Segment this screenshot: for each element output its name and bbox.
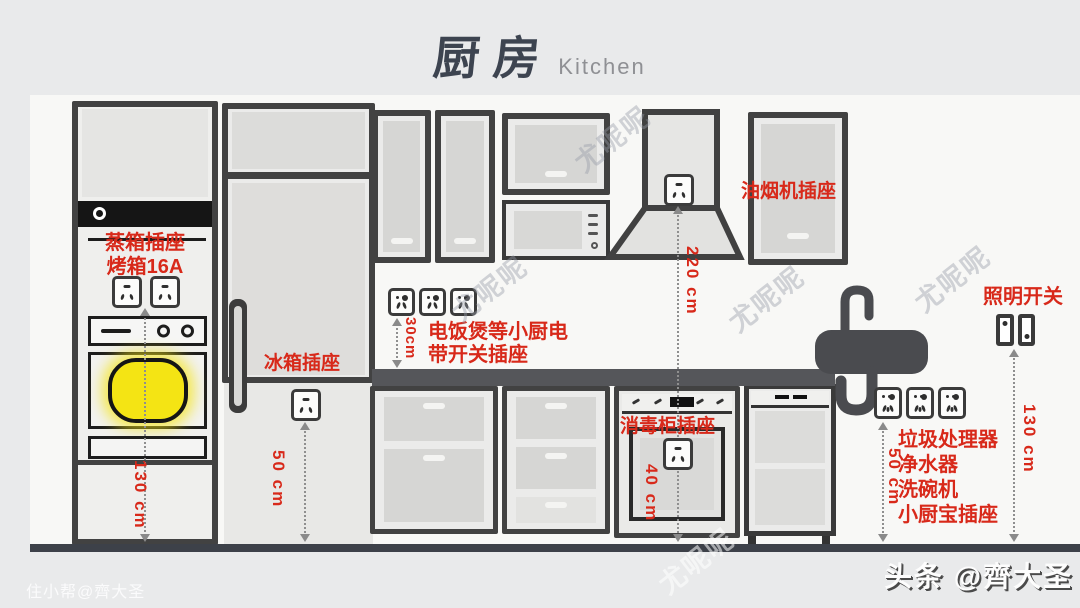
under-sink-outlet-icon — [874, 387, 902, 419]
oven-knob-icon — [157, 325, 170, 338]
small-appliances-label-2: 带开关插座 — [428, 338, 528, 367]
light-switch-icon — [996, 314, 1014, 346]
drawer-panel — [516, 447, 596, 489]
measure-line-hood — [677, 208, 679, 540]
page-title: 厨房Kitchen — [0, 22, 1080, 88]
wall-cabinet — [435, 110, 495, 263]
credit-bottom-right: 头条 @齊大圣 — [884, 555, 1073, 595]
oven-cabinet-top-panel — [82, 109, 208, 197]
measure-sterilizer: 40 cm — [641, 464, 661, 522]
kitchen-outlet-diagram: 厨房Kitchen 蒸箱插座 烤箱16A 130 cm 冰箱插座 50 cm — [0, 0, 1080, 608]
outlet-icon — [150, 276, 180, 308]
measure-line-fridge — [304, 424, 306, 540]
drawer-panel — [516, 497, 596, 523]
microwave-window — [514, 211, 582, 249]
credit-bottom-left: 住小帮@齊大圣 — [26, 578, 145, 602]
oven-window-highlight — [108, 358, 188, 423]
light-switch-label: 照明开关 — [983, 280, 1063, 309]
base-cabinet-drawers — [502, 386, 610, 534]
fridge-main-door — [232, 183, 365, 375]
measure-line-countertop — [396, 320, 398, 366]
base-cabinet-drawers — [370, 386, 498, 534]
measure-light-switch: 130 cm — [1019, 404, 1039, 474]
title-english: Kitchen — [558, 54, 645, 79]
under-sink-outlet-icon — [906, 387, 934, 419]
light-switch-icon — [1018, 314, 1035, 346]
measure-fridge: 50 cm — [268, 450, 288, 508]
fridge-outlet-label: 冰箱插座 — [264, 348, 340, 375]
cabinet-door-panel — [383, 121, 420, 252]
measure-oven-column: 130 cm — [130, 460, 150, 530]
outlet-icon — [112, 276, 142, 308]
sterilizer-outlet-label: 消毒柜插座 — [620, 411, 715, 438]
measure-hood: 220 cm — [682, 246, 702, 316]
drawer-panel — [384, 397, 484, 441]
microwave-button-icon — [588, 223, 598, 226]
microwave-button-icon — [588, 232, 598, 235]
under-sink-label-2: 净水器 — [898, 453, 998, 478]
measure-countertop: 30cm — [402, 317, 419, 359]
title-chinese: 厨房 — [431, 22, 558, 88]
measure-line-light-switch — [1013, 351, 1015, 540]
fridge-handle-inner — [234, 306, 242, 406]
fridge-divider — [228, 172, 369, 179]
switched-outlet-icon — [388, 288, 415, 316]
microwave-knob-icon — [591, 242, 598, 249]
drawer-panel — [384, 449, 484, 522]
cabinet-door-panel — [446, 121, 484, 252]
oven-knob-icon — [181, 325, 194, 338]
fridge-freezer-door — [232, 112, 365, 169]
countertop — [372, 369, 835, 386]
sterilizer-outlet-icon — [663, 438, 693, 470]
steam-oven-knob-icon — [93, 207, 106, 220]
under-sink-label-1: 垃圾处理器 — [898, 428, 998, 453]
under-sink-labels: 垃圾处理器 净水器 洗碗机 小厨宝插座 — [898, 428, 998, 528]
oven-handle-icon — [101, 329, 131, 333]
oven-16a-label: 烤箱16A — [78, 250, 212, 279]
under-sink-label-4: 小厨宝插座 — [898, 503, 998, 528]
wall-cabinet — [372, 110, 431, 263]
drawer-panel — [516, 397, 596, 439]
dishwasher-panel — [755, 469, 825, 525]
oven-control-panel — [88, 316, 207, 346]
fridge-outlet-icon — [291, 389, 321, 421]
switched-outlet-icon — [419, 288, 446, 316]
floor-line — [30, 544, 1080, 552]
hood-outlet-label: 油烟机插座 — [741, 176, 836, 203]
microwave-button-icon — [588, 214, 598, 217]
under-sink-outlet-icon — [938, 387, 966, 419]
oven-drawer — [88, 436, 207, 459]
hood-outlet-icon — [664, 174, 694, 206]
microwave — [502, 200, 610, 260]
under-sink-label-3: 洗碗机 — [898, 478, 998, 503]
